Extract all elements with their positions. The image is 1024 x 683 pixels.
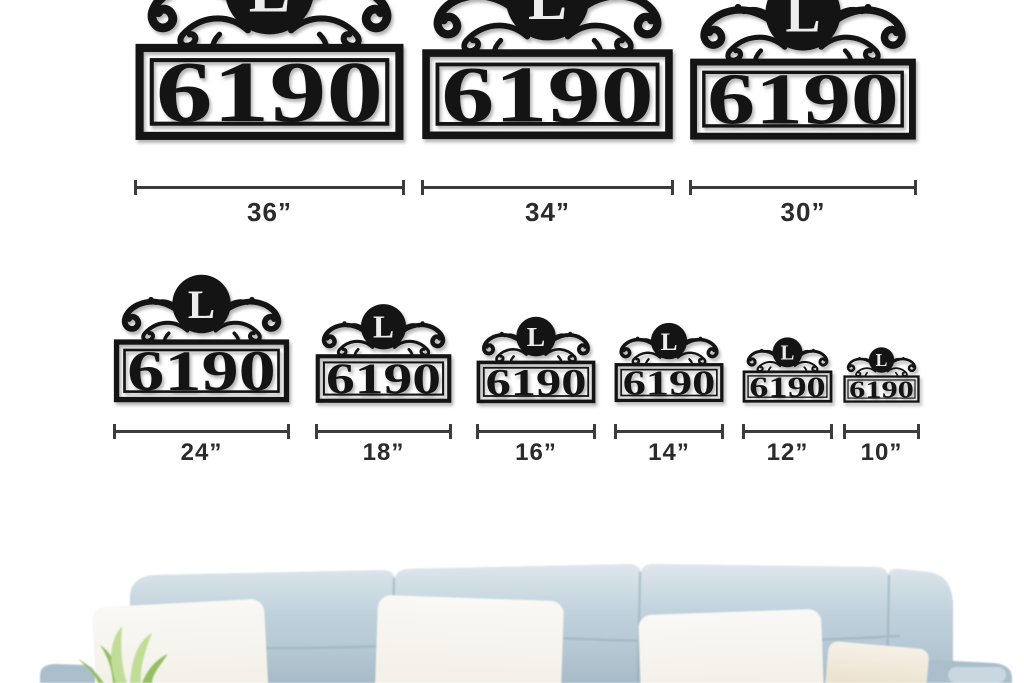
address-sign-16in: L 6190: [476, 315, 596, 405]
address-sign-30in: L 6190: [689, 0, 917, 143]
address-sign-36in: L 6190: [134, 0, 405, 144]
sofa-scene: [0, 548, 1024, 683]
monogram-letter: L: [373, 310, 394, 345]
dimension-line-24in: [113, 424, 290, 439]
dimension-label-36in: 36”: [134, 198, 405, 227]
house-number: 6190: [486, 362, 587, 404]
house-number: 6190: [749, 371, 825, 403]
monogram-letter: L: [786, 0, 821, 43]
dimension-line-18in: [315, 424, 452, 439]
dimension-label-10in: 10”: [843, 440, 920, 466]
dimension-line-36in: [134, 180, 405, 195]
house-number: 6190: [156, 44, 383, 140]
pillow-center-right: [638, 609, 825, 683]
house-number: 6190: [707, 59, 899, 140]
address-sign-12in: L 6190: [742, 336, 833, 404]
house-number: 6190: [127, 341, 276, 403]
dimension-label-18in: 18”: [315, 440, 452, 466]
monogram-letter: L: [876, 350, 888, 370]
monogram-letter: L: [781, 341, 795, 365]
monogram-letter: L: [527, 321, 545, 352]
monogram-letter: L: [661, 328, 678, 356]
product-size-chart: L 6190 36” L 6190 34”: [0, 0, 1024, 683]
address-sign-14in: L 6190: [614, 321, 724, 404]
monogram-letter: L: [528, 0, 567, 32]
dimension-line-10in: [843, 424, 920, 439]
house-number: 6190: [849, 376, 914, 403]
address-sign-10in: L 6190: [843, 346, 920, 404]
pillow-center-left: [374, 595, 564, 683]
dimension-line-34in: [421, 180, 674, 195]
address-sign-34in: L 6190: [421, 0, 674, 143]
monogram-letter: L: [188, 282, 215, 327]
house-number: 6190: [441, 49, 654, 139]
dimension-line-16in: [476, 424, 596, 439]
address-sign-18in: L 6190: [315, 302, 452, 405]
dimension-line-30in: [689, 180, 917, 195]
dimension-label-34in: 34”: [421, 198, 674, 227]
house-number: 6190: [623, 363, 715, 402]
dimension-label-14in: 14”: [614, 440, 724, 466]
dimension-label-16in: 16”: [476, 440, 596, 466]
house-number: 6190: [326, 355, 441, 403]
dimension-label-24in: 24”: [113, 440, 290, 466]
dimension-label-12in: 12”: [742, 440, 833, 466]
monogram-letter: L: [249, 0, 291, 25]
address-sign-24in: L 6190: [113, 272, 290, 405]
dimension-label-30in: 30”: [689, 198, 917, 227]
dimension-line-12in: [742, 424, 833, 439]
sofa-right-arm-cushion: [948, 667, 1006, 683]
dimension-line-14in: [614, 424, 724, 439]
